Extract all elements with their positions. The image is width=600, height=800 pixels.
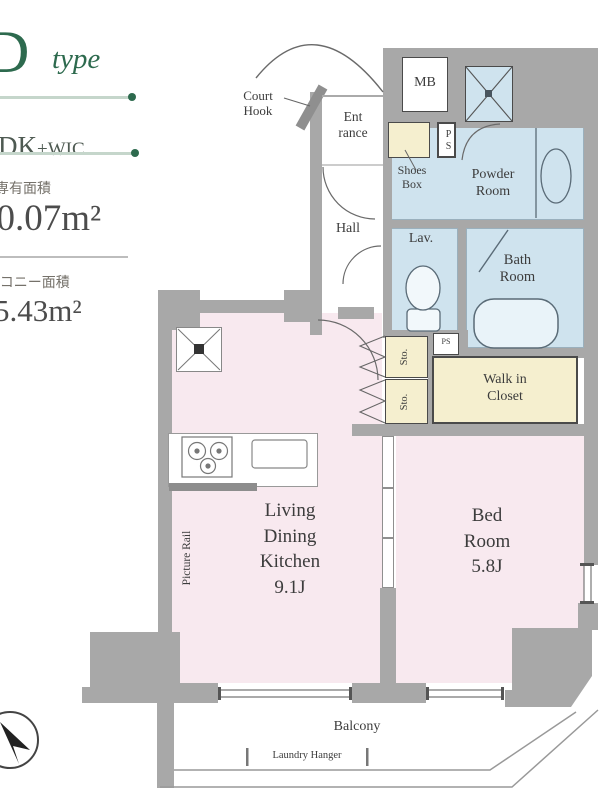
wall-hall-bottom [338,307,374,319]
picture-rail-label: Picture Rail [181,498,197,618]
divider-line-bottom [0,152,135,155]
wall-balcony-left [157,700,174,788]
court-hook-label: Court Hook [228,88,288,119]
balcony-label: Balcony [312,719,402,736]
shoes-box-label: Shoes Box [384,163,440,191]
info-divider [0,256,128,258]
wall-right-lower [578,603,598,630]
meter-box-label: MB [402,75,448,92]
walk-in-closet-label: Walk in Closet [432,372,578,405]
compass-north-icon [0,712,38,768]
bedroom-label: Bed Room 5.8J [427,503,547,580]
wall-lav-bath-divider [458,228,466,333]
laundry-hanger-label: Laundry Hanger [250,750,364,762]
window-bedroom [426,687,504,700]
balcony-area-value: 5.43m² [0,293,134,330]
divider-dot-bottom [131,149,139,157]
entrance-label: Ent rance [322,109,384,141]
wall-powder-lav-divider [388,220,584,228]
bathroom-label: Bath Room [470,252,565,286]
divider-dot-top [128,93,136,101]
shoes-box [388,122,430,158]
window-ldk [218,687,352,700]
pipe-space-small-label: PS [433,337,459,346]
wall-left-pillar [90,632,180,703]
powder-room-label: Powder Room [443,167,543,200]
wall-window-sill-left [172,683,218,703]
wall-wic-bottom [432,424,584,436]
wall-ldk-topright-block [284,290,318,322]
kitchen-counter [168,433,318,487]
bathroom-area [466,228,584,348]
divider-line-top [0,96,132,99]
storage-upper-label: Sto. [399,337,413,377]
area-label: 専有面積 [0,180,85,197]
washing-machine-pan [465,66,513,122]
plan-type-letter: D [0,22,56,82]
sliding-door-partition [382,436,394,588]
refrigerator-space [176,327,222,372]
wall-partition-foot [352,683,426,703]
pipe-space-label: PS [439,126,454,156]
ldk-label: Living Dining Kitchen 9.1J [200,498,380,601]
lavatory-label: Lav. [390,231,452,248]
wall-right [584,48,598,565]
hall-label: Hall [320,221,376,238]
balcony-area-label: バルコニー面積 [0,274,112,291]
floorplan-page: D type DK+WIC 専有面積 30.07m² バルコニー面積 5.43m… [0,0,600,800]
storage-lower-label: Sto. [399,382,413,422]
area-value: 30.07m² [0,197,138,241]
layout-suffix: +WIC [37,139,85,160]
layout-main: DK [0,131,37,161]
wall-under-sto [352,424,436,436]
wall-partition-solid [380,588,396,683]
wall-pillar-foot [82,687,92,703]
plan-type-word: type [52,42,132,76]
layout-text: DK+WIC [0,112,138,163]
